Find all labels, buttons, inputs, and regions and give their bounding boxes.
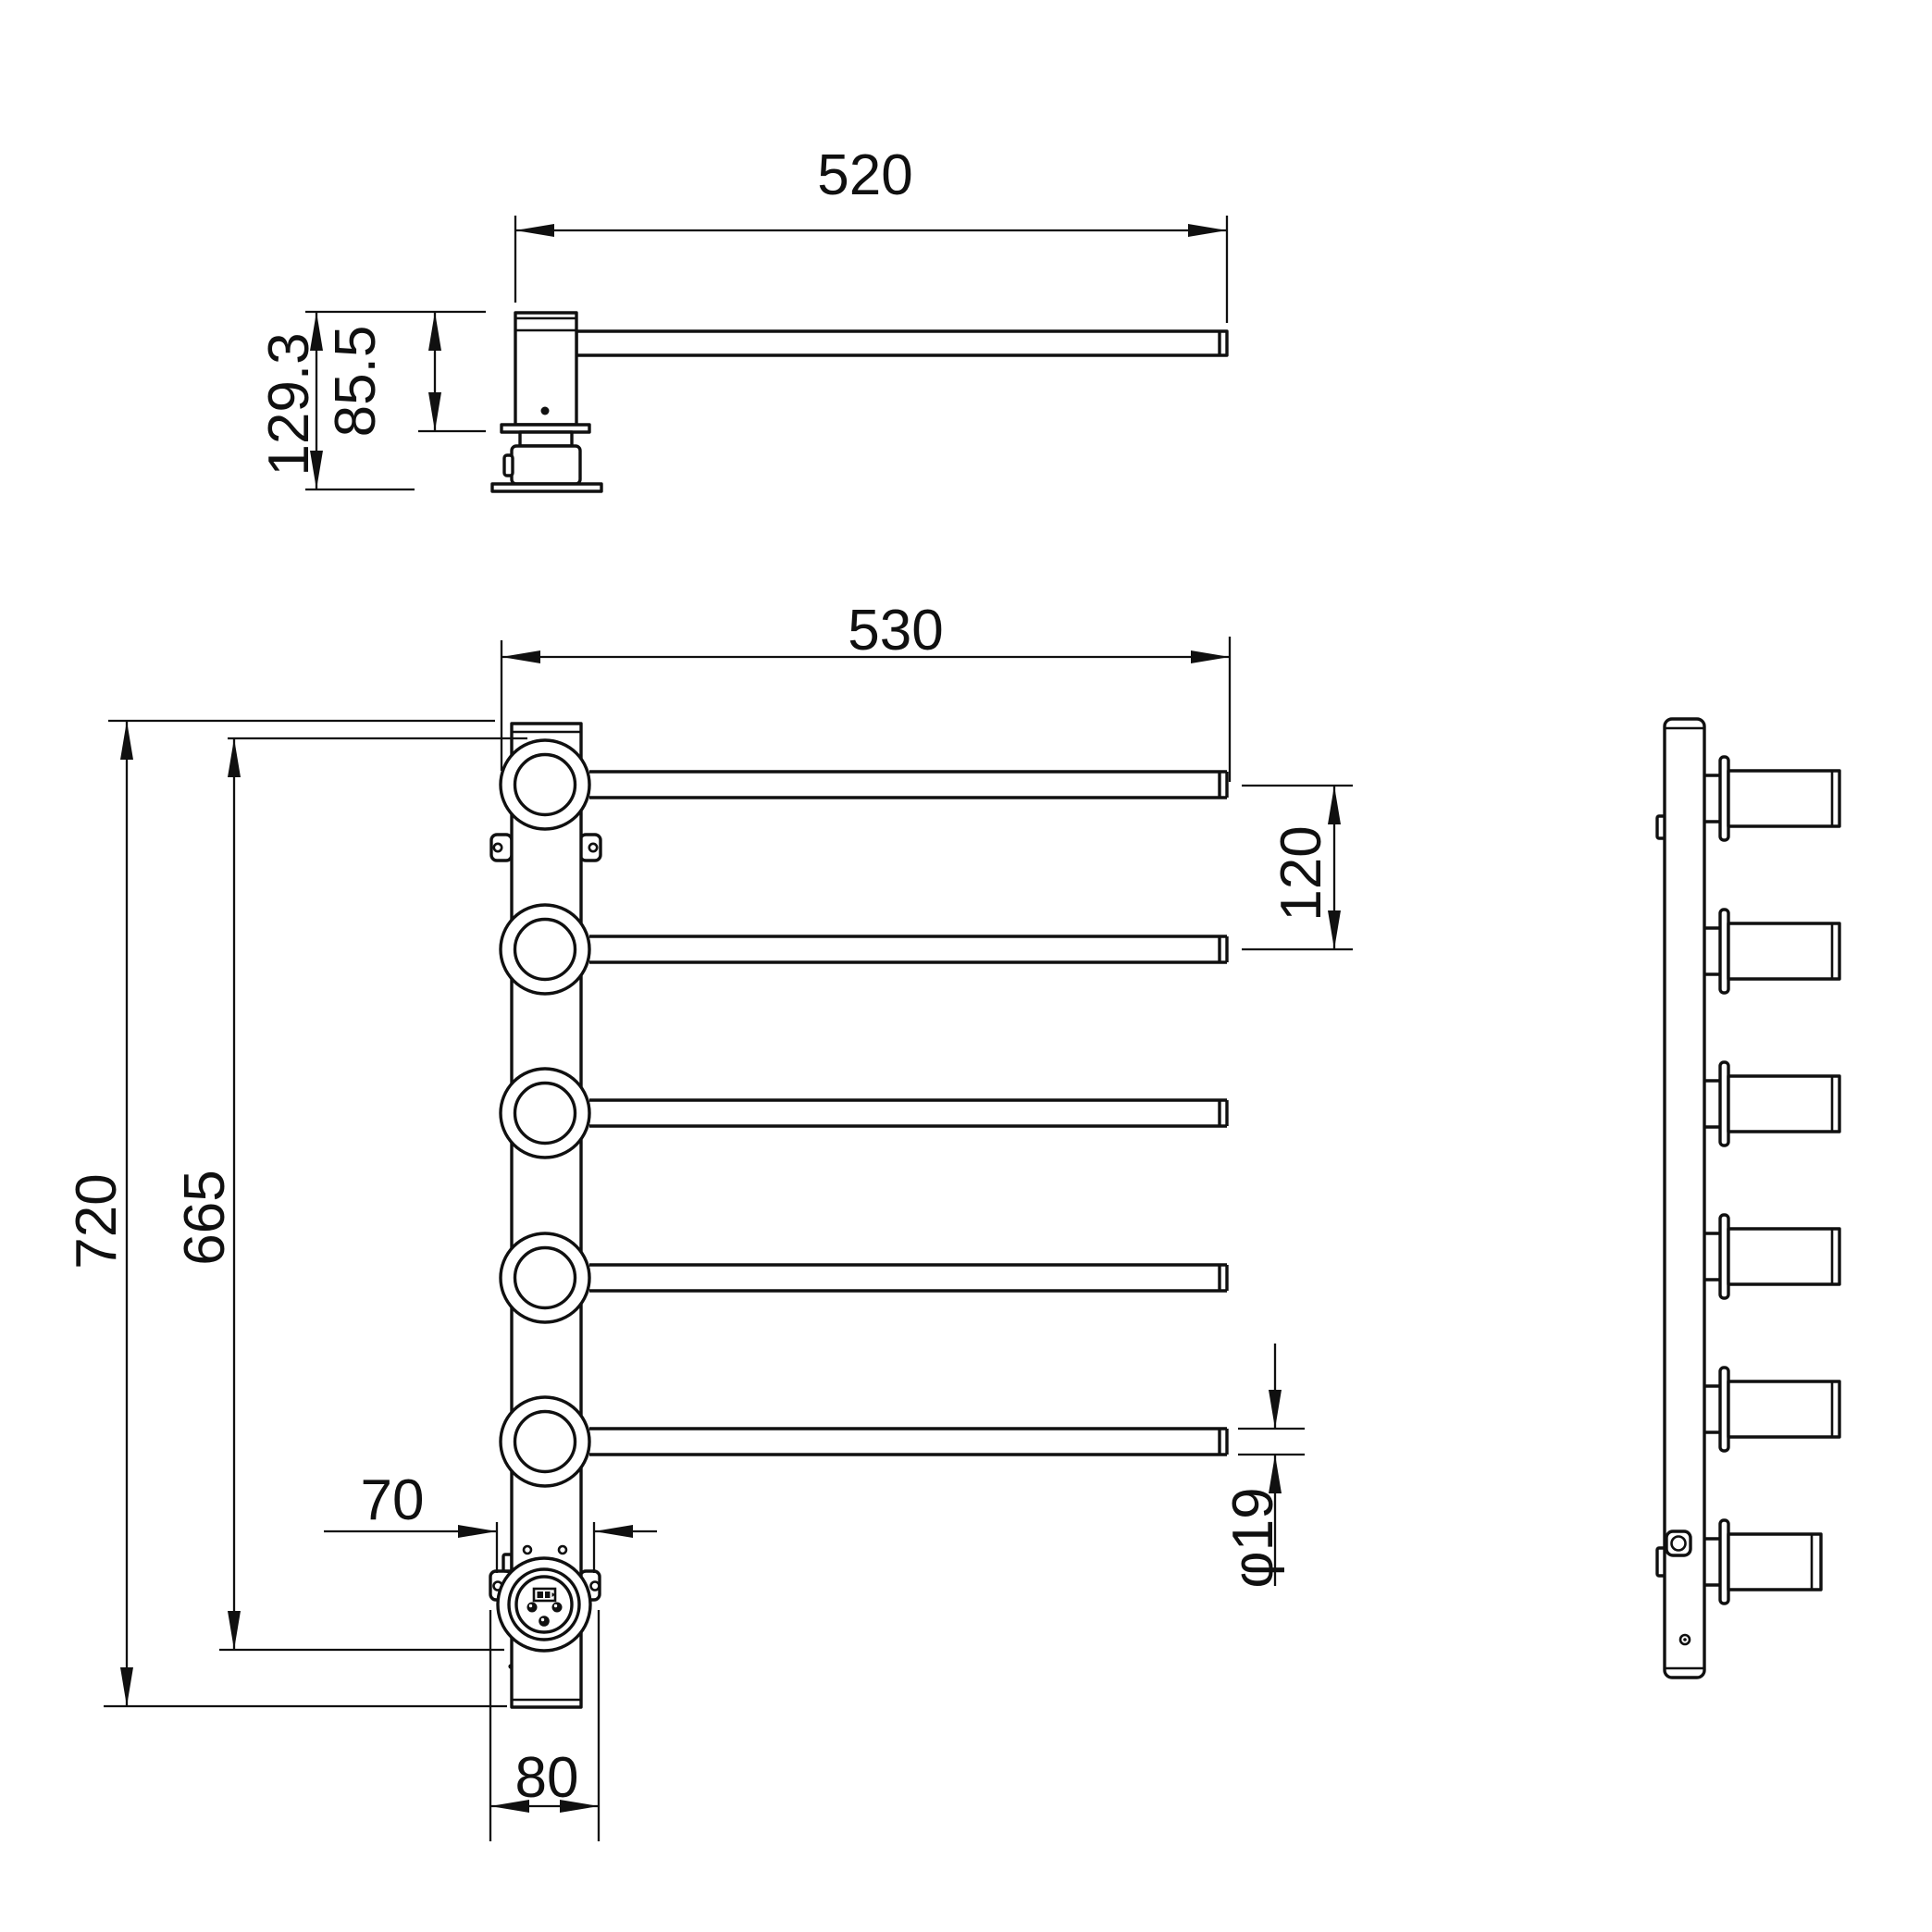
side-bar (1704, 1368, 1839, 1451)
pivot-ring (501, 740, 589, 829)
side-bar (1704, 757, 1839, 840)
side-bar (1704, 1215, 1839, 1298)
side-bar (1704, 1062, 1839, 1146)
dim-665-label: 665 (173, 1170, 237, 1265)
dim-80-label: 80 (515, 1746, 579, 1810)
base-box (512, 446, 580, 484)
pivot-ring (501, 1397, 589, 1486)
dim-129-3-label: 129.3 (257, 332, 321, 476)
drawing-background (0, 0, 1932, 1932)
pivot-cylinder (515, 313, 576, 425)
power-indicator (1666, 1531, 1690, 1555)
pivot-ring (501, 1233, 589, 1322)
technical-drawing-page: 520 129.3 85.5 (0, 0, 1932, 1932)
dim-phi19-label: φ19 (1221, 1487, 1285, 1588)
side-socket-cylinder (1704, 1520, 1821, 1604)
base-clip (504, 455, 513, 476)
dim-530-label: 530 (848, 599, 943, 663)
dim-70-label: 70 (361, 1468, 425, 1532)
base-neck (520, 432, 572, 446)
pivot-ring (501, 905, 589, 994)
towel-rail-drawing: 520 129.3 85.5 (0, 0, 1932, 1932)
side-bar (1704, 910, 1839, 993)
wall-plate (492, 484, 601, 491)
pivot-ring (501, 1069, 589, 1158)
dim-85-5-label: 85.5 (324, 326, 388, 438)
dim-120-label: 120 (1269, 825, 1333, 921)
swing-arm-bar (576, 331, 1227, 355)
dim-520-label: 520 (817, 143, 912, 207)
set-screw (541, 407, 550, 415)
post-edge-mark (508, 1664, 513, 1668)
dim-720-label: 720 (65, 1173, 129, 1269)
